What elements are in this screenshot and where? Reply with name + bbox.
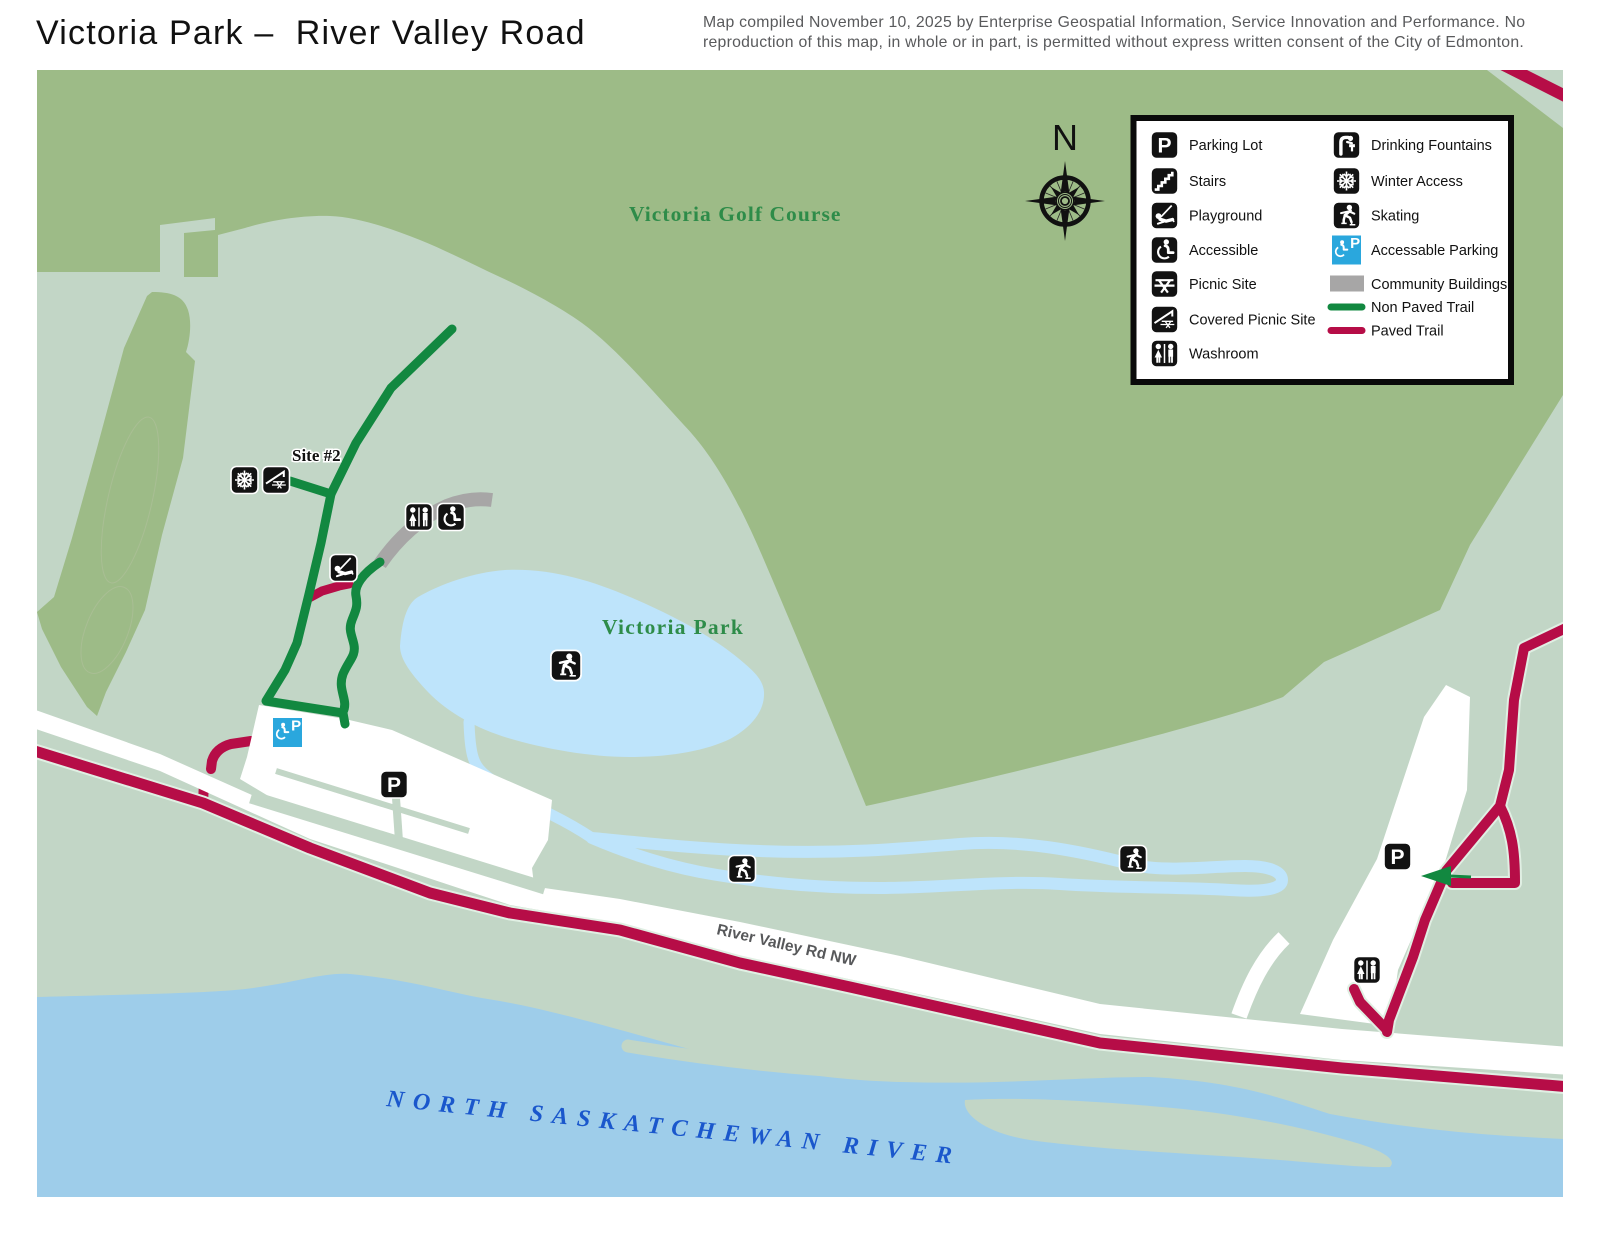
svg-text:Non Paved Trail: Non Paved Trail: [1371, 300, 1474, 316]
svg-text:Site #2: Site #2: [292, 446, 341, 465]
svg-text:Winter Access: Winter Access: [1371, 174, 1463, 190]
svg-text:Stairs: Stairs: [1189, 174, 1226, 190]
svg-text:Playground: Playground: [1189, 209, 1262, 225]
svg-text:Community Buildings: Community Buildings: [1371, 277, 1507, 293]
svg-text:Accessible: Accessible: [1189, 243, 1258, 259]
svg-text:N: N: [1052, 117, 1078, 158]
svg-text:Accessable Parking: Accessable Parking: [1371, 243, 1498, 259]
svg-text:Covered Picnic Site: Covered Picnic Site: [1189, 313, 1316, 329]
svg-text:Victoria Park: Victoria Park: [602, 615, 744, 639]
svg-text:Paved Trail: Paved Trail: [1371, 324, 1444, 340]
svg-text:Washroom: Washroom: [1189, 347, 1259, 363]
svg-text:Victoria Golf Course: Victoria Golf Course: [629, 202, 841, 226]
svg-text:Parking Lot: Parking Lot: [1189, 138, 1262, 154]
svg-text:Drinking Fountains: Drinking Fountains: [1371, 138, 1492, 154]
svg-text:Picnic Site: Picnic Site: [1189, 277, 1257, 293]
svg-text:Skating: Skating: [1371, 209, 1419, 225]
